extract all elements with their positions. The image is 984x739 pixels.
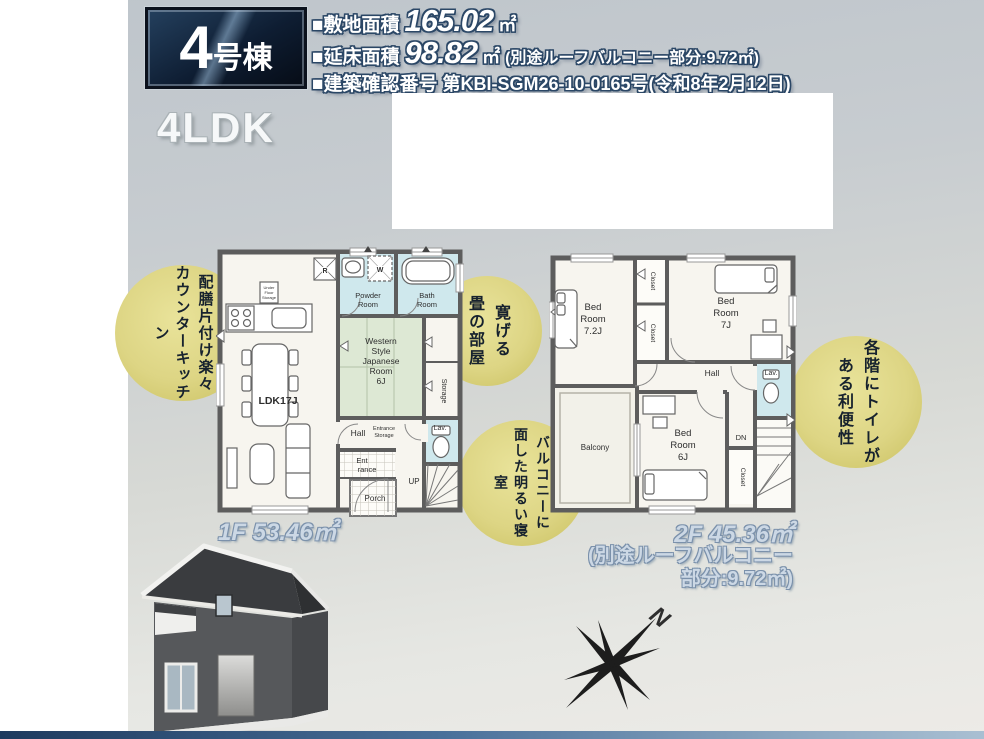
floorplan-1f: R W Powder Room Bath Room Western Style … — [216, 246, 464, 522]
entrance-storage-label: Storage — [374, 433, 393, 439]
bath-room-label: Room — [417, 300, 437, 309]
spec-label: ■延床面積 — [312, 42, 399, 69]
entrance-label: Ent — [356, 456, 368, 465]
closet-label: Closet — [649, 272, 656, 291]
hall-label: Hall — [705, 368, 720, 378]
spec-value: 98.82 — [404, 37, 477, 68]
spec-confirmation-number: ■建築確認番号 第KBI-SGM26-10-0165号(令和8年2月12日) — [312, 69, 972, 96]
entrance-storage-label: Entrance — [373, 426, 395, 432]
spec-unit: ㎡ — [482, 43, 500, 69]
tatami-room-label: 6J — [377, 376, 386, 386]
callout-line: 寛げる — [487, 295, 513, 367]
floorplan-2f: Bed Room 7.2J Closet Closet Bed Room 7J … — [549, 246, 797, 518]
balcony-label: Balcony — [581, 443, 609, 452]
bedroom72-label: 7.2J — [584, 326, 602, 337]
bath-room-label: Bath — [419, 291, 434, 300]
powder-room-label: Powder — [355, 291, 381, 300]
bedroom6-label: Room — [670, 440, 695, 451]
entrance-label: rance — [358, 465, 377, 474]
ldk-label: LDK17J — [258, 395, 297, 407]
hall-label: Hall — [351, 428, 366, 438]
bedroom7-label: 7J — [721, 320, 731, 331]
callout-line: ある利便性 — [830, 339, 856, 465]
upper-window — [216, 595, 232, 616]
house-side-face — [292, 611, 328, 718]
bedroom7-label: Room — [713, 308, 738, 319]
floor2-roof-balcony-note: 部分:9.72㎡) — [550, 562, 793, 591]
fridge-label: R — [322, 268, 327, 275]
bedroom7-label: Bed — [718, 296, 735, 307]
tatami-room-label: Room — [370, 366, 393, 376]
house-render — [140, 538, 336, 738]
unit-number: 4 — [179, 18, 212, 78]
left-margin — [0, 0, 128, 731]
compass: N — [552, 596, 677, 716]
stairs-up-label: UP — [408, 477, 419, 486]
storage-label: Storage — [440, 379, 447, 404]
unit-badge: 4 号棟 — [145, 7, 307, 89]
callout-line: 配膳片付け楽々 — [194, 265, 217, 401]
flyer-page: 4 号棟 ■敷地面積 165.02 ㎡ ■延床面積 98.82 ㎡ (別途ルーフ… — [0, 0, 984, 739]
callout-toilet: 各階にトイレが ある利便性 — [790, 336, 922, 468]
lav-label: Lav. — [434, 425, 447, 432]
under-floor-storage-label: Storage — [262, 295, 277, 300]
bedroom72-label: Bed — [585, 302, 602, 313]
tatami-room-label: Western — [365, 336, 397, 346]
porch-label: Porch — [365, 494, 386, 503]
callout-line: カウンターキッチン — [150, 265, 194, 401]
spec-label: ■建築確認番号 — [312, 69, 437, 96]
stairs-down-label: DN — [736, 433, 747, 442]
bedroom6-label: 6J — [678, 452, 688, 463]
spec-label: ■敷地面積 — [312, 10, 399, 37]
callout-line: 面した明るい寝室 — [490, 420, 532, 546]
powder-room-label: Room — [358, 300, 378, 309]
front-door — [218, 655, 254, 716]
bedroom6-label: Bed — [675, 428, 692, 439]
lav-label: Lav. — [765, 370, 778, 377]
closet-label: Closet — [649, 324, 656, 343]
blank-box — [392, 93, 833, 229]
closet-label: Closet — [739, 468, 746, 487]
spec-floor-area: ■延床面積 98.82 ㎡ (別途ルーフバルコニー部分:9.72㎡) — [312, 37, 972, 69]
bottom-accent-bar — [0, 731, 984, 739]
callout-line: 各階にトイレが — [856, 339, 882, 465]
north-label: N — [644, 601, 675, 633]
spec-note: (別途ルーフバルコニー部分:9.72㎡) — [505, 44, 759, 68]
callout-line: 畳の部屋 — [461, 295, 487, 367]
spec-site-area: ■敷地面積 165.02 ㎡ — [312, 5, 972, 37]
washer-label: W — [377, 267, 384, 274]
compass-star — [564, 618, 660, 710]
layout-type-label: 4LDK — [157, 104, 275, 152]
unit-suffix: 号棟 — [213, 33, 273, 77]
spec-unit: ㎡ — [498, 11, 516, 37]
tatami-room-label: Style — [372, 346, 391, 356]
spec-value: 165.02 — [404, 5, 493, 36]
spec-list: ■敷地面積 165.02 ㎡ ■延床面積 98.82 ㎡ (別途ルーフバルコニー… — [312, 5, 972, 96]
tatami-room-label: Japanese — [363, 356, 400, 366]
bedroom72-label: Room — [580, 314, 605, 325]
